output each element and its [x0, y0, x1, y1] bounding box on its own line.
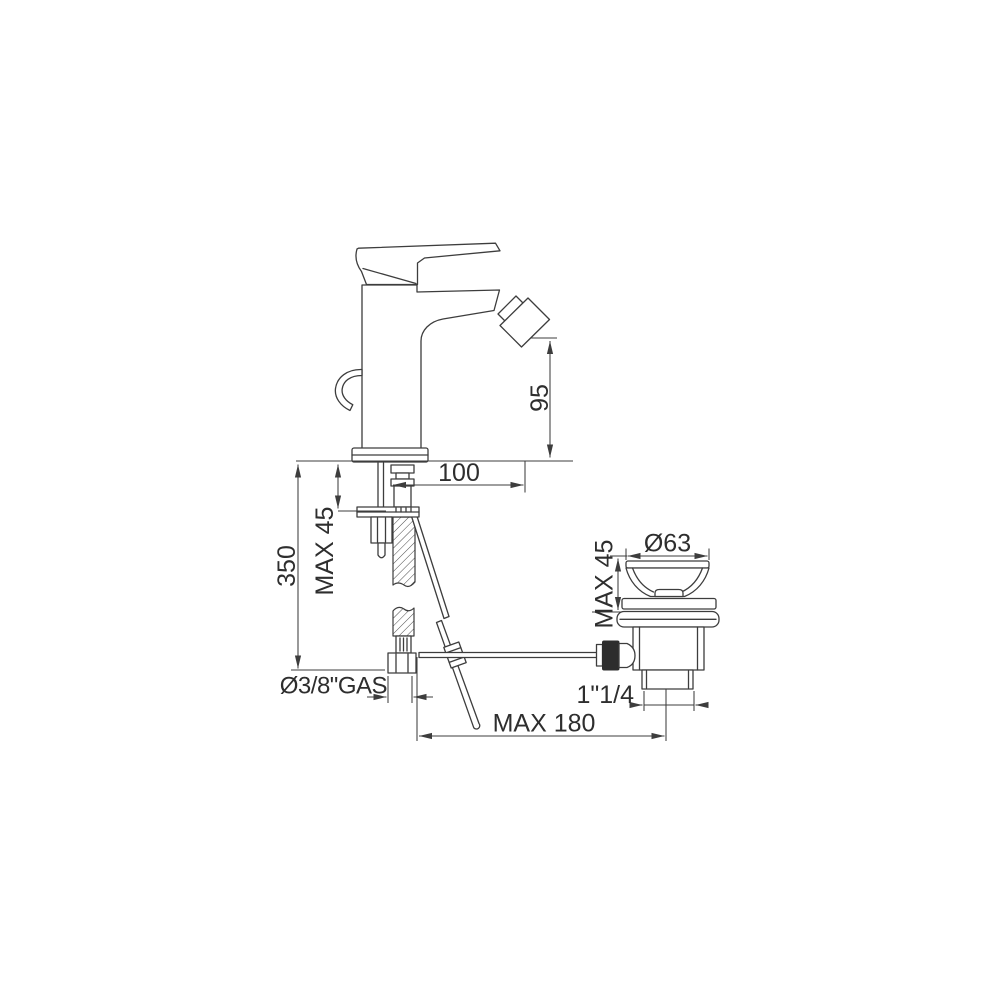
plug-knob	[655, 590, 683, 597]
dim-label-mixer-max-deck: MAX 45	[311, 507, 339, 596]
ball-joint-connector	[619, 644, 635, 668]
supply-hex-nut	[388, 653, 416, 673]
dim-label-spout-height: 95	[526, 384, 554, 412]
dim-label-waste-thread: 1"1/4	[576, 681, 634, 709]
dim-label-supply-thread: Ø3/8"GAS	[280, 673, 387, 700]
popup-horizontal-rod	[419, 653, 597, 658]
technical-drawing-page: 100 95 MAX 45 350 Ø3/8"GAS MAX 180 1"1/4…	[0, 0, 990, 990]
dim-label-rod-reach: MAX 180	[493, 710, 596, 738]
popup-knob	[335, 369, 362, 410]
mounting-nut	[371, 517, 392, 558]
mounting-plate	[357, 507, 419, 517]
shank-nut	[391, 465, 414, 507]
supply-hose-end	[388, 636, 416, 673]
mixer-lever-handle	[356, 243, 500, 284]
dim-label-spout-projection: 100	[438, 459, 480, 487]
popup-rod-lower	[437, 621, 480, 730]
stud-tip	[378, 543, 385, 558]
dim-label-hose-length: 350	[273, 545, 301, 587]
waste-body	[633, 627, 704, 670]
mixer-body-and-spout	[362, 285, 500, 449]
ball-joint-flange	[597, 645, 603, 667]
mixer-body-group	[335, 243, 549, 462]
dim-label-waste-max-deck: MAX 45	[591, 540, 619, 629]
waste-cap-top	[626, 561, 709, 568]
bidet-mixer-technical-drawing: 100 95 MAX 45 350 Ø3/8"GAS MAX 180 1"1/4…	[0, 0, 990, 990]
threaded-shank-lower	[393, 607, 414, 636]
waste-threaded-tail	[642, 670, 693, 689]
threaded-shank-upper	[393, 517, 415, 586]
ball-joint	[603, 641, 620, 670]
plug-plate	[622, 599, 716, 610]
dim-label-waste-cap-diameter: Ø63	[644, 530, 691, 558]
